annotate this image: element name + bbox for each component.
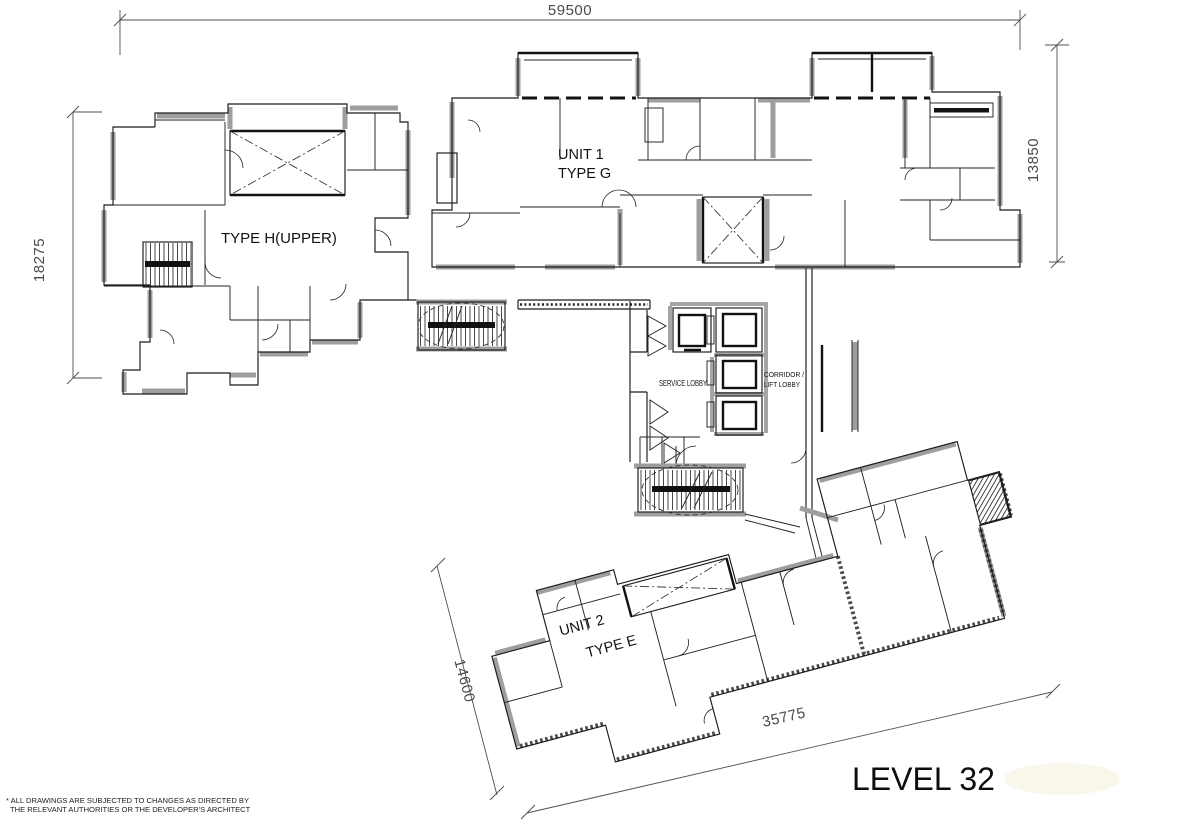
stair-core-icon [634, 465, 746, 515]
page-title: LEVEL 32 [852, 761, 995, 797]
footnote-line2: THE RELEVANT AUTHORITIES OR THE DEVELOPE… [10, 805, 251, 814]
link-corridor [416, 300, 650, 350]
wing-type-h: TYPE H(UPPER) [104, 104, 418, 394]
paper-smudge [1004, 763, 1120, 795]
dimension-bottom: 35775 [521, 684, 1060, 819]
void-shaft-g [703, 197, 763, 263]
footnote-line1: * ALL DRAWINGS ARE SUBJECTED TO CHANGES … [6, 796, 249, 805]
wing-unit1-type-g: UNIT 1 TYPE G [432, 53, 1020, 267]
label-unit2-line1: UNIT 2 [558, 612, 606, 639]
label-service-lobby: SERVICE LOBBY [659, 378, 707, 388]
label-corridor-line1: CORRIDOR / [764, 370, 805, 379]
label-corridor-line2: LIFT LOBBY [764, 380, 800, 389]
wing-unit2-type-e: UNIT 2 TYPE E [469, 433, 1046, 786]
dimension-left-label: 18275 [31, 238, 48, 282]
label-unit1-line1: UNIT 1 [558, 147, 604, 163]
central-core: SERVICE LOBBY CORRIDOR / LIFT LOBBY [630, 268, 858, 558]
dimension-right-label: 13850 [1025, 138, 1042, 182]
void-shaft-h [230, 131, 345, 195]
dimension-bottom-left-label: 14600 [450, 657, 478, 704]
hatched-shaft-icon [969, 473, 1011, 524]
floor-plan-drawing: 59500 18275 13850 14600 35775 [0, 0, 1190, 826]
dimension-top: 59500 [114, 2, 1026, 55]
floor-plan-page: 59500 18275 13850 14600 35775 [0, 0, 1190, 826]
label-unit2-line2: TYPE E [584, 633, 638, 662]
label-type-h: TYPE H(UPPER) [221, 230, 337, 247]
dimension-top-label: 59500 [548, 2, 592, 19]
dimension-bottom-label: 35775 [761, 704, 808, 731]
stair-link-icon [416, 302, 507, 350]
void-shaft-e [623, 558, 735, 617]
stair-h-icon [143, 242, 192, 287]
dimension-right: 13850 [1025, 39, 1069, 268]
lift-bank [673, 308, 762, 435]
label-unit1-line2: TYPE G [558, 166, 611, 182]
dimension-left: 18275 [31, 106, 102, 384]
dimension-bottom-left: 14600 [431, 558, 504, 800]
